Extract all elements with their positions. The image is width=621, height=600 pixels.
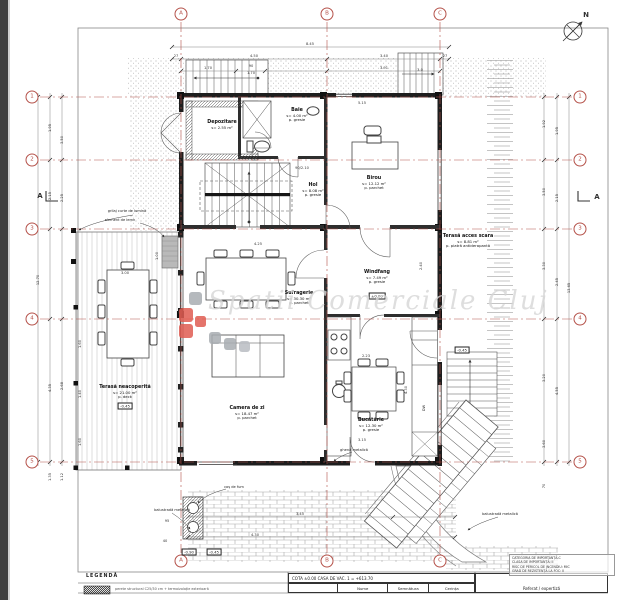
sign-cell-empty [289, 584, 338, 592]
viewer-edge-strip [0, 0, 8, 600]
importance-block: CATEGORIA DE IMPORTANȚĂ-C CLASA DE IMPOR… [509, 554, 615, 576]
sign-cell-nume: Nume [338, 584, 387, 592]
sign-cell-cerinta: Cerința [429, 584, 474, 592]
signature-row: Nume Semnătura Cerința [288, 583, 475, 593]
importance-line: GRAD DE REZISTENȚĂ LA FOC: II [512, 569, 612, 573]
watermark-text: Spatii Comerciale Cluj [208, 286, 549, 316]
viewer-edge-line [8, 0, 10, 600]
watermark-logo-icon [179, 292, 257, 358]
north-compass-icon [563, 22, 582, 41]
floor-plan-sheet: ABC ABC 12345 12345 Depozitare s= 2.55 m… [0, 0, 621, 600]
cota-line: COTA ±0.00 CASA DE VAC. 1 = +613.70 [288, 573, 475, 583]
referat-label: Referat / expertiză [476, 586, 607, 591]
legend-note: perete structural C25/30 cm + termoizola… [115, 587, 209, 591]
interior-stair [200, 163, 292, 227]
chimney-shaft [183, 497, 203, 539]
referat-box: Referat / expertiză [475, 573, 608, 593]
legend-title: LEGENDĂ [86, 574, 118, 579]
sign-cell-semnatura: Semnătura [388, 584, 430, 592]
